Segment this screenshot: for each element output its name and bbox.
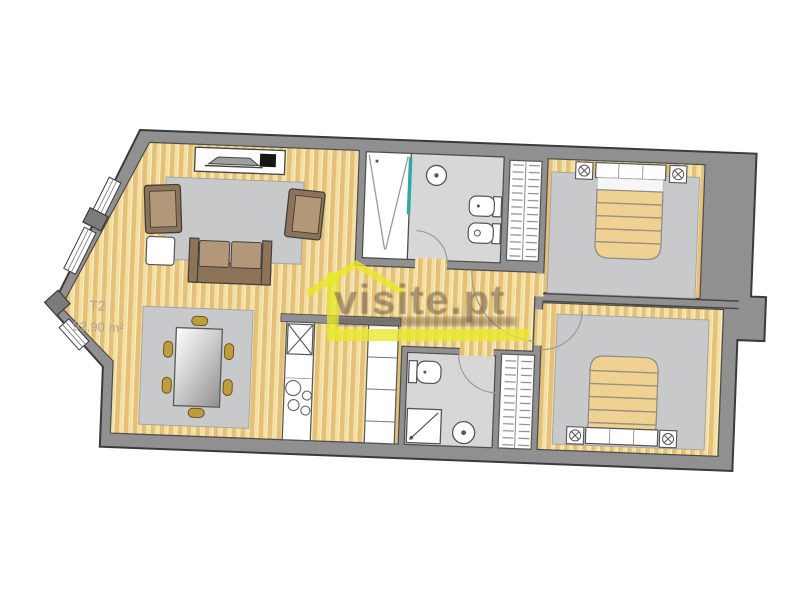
nightstand-lamp-icon (566, 427, 584, 445)
washbasin-icon (426, 165, 447, 186)
double-bed-top (592, 163, 666, 261)
dining-table (173, 328, 222, 408)
watermark: visite.pt (310, 264, 529, 341)
nightstand-lamp-icon (659, 430, 677, 448)
wardrobe-bottom (498, 354, 535, 449)
toilet-icon (409, 361, 442, 384)
watermark-underline-bar (327, 329, 529, 341)
toilet-icon (469, 196, 502, 217)
wardrobe-top (506, 160, 542, 261)
kitchen-cabinets (364, 325, 399, 444)
double-bed-bottom (585, 355, 660, 446)
watermark-site-text: visite.pt (334, 276, 506, 323)
armchair (144, 184, 181, 233)
nightstand-lamp-icon (575, 162, 593, 180)
bedroom-bottom-right (530, 309, 709, 450)
chair (188, 408, 204, 418)
bedroom2-door-opening (534, 309, 543, 345)
chair (163, 341, 173, 357)
sink-icon (287, 324, 313, 355)
chair (192, 316, 208, 326)
shower-icon (406, 408, 441, 443)
area-label: 92.90 m² (72, 319, 125, 336)
side-table (146, 236, 175, 265)
unit-label: T2 (89, 297, 106, 314)
media-box-icon (260, 154, 276, 168)
bathroom-bottom (404, 345, 497, 447)
bathroom-top-door-opening (415, 258, 447, 270)
bathroom-top (362, 152, 504, 272)
dining-area (139, 306, 253, 428)
footboard (585, 427, 658, 446)
washbasin-icon (452, 421, 475, 444)
chair (162, 377, 172, 393)
chair (224, 343, 234, 359)
chair (223, 379, 233, 395)
nightstand-lamp-icon (669, 165, 687, 183)
blanket (594, 190, 663, 260)
tv-console (194, 147, 285, 174)
shower-glass-panel (408, 157, 410, 214)
bathroom-bottom-door-opening (460, 347, 494, 356)
armchair (284, 189, 325, 241)
floorplan-image: T2 92.90 m² visite.pt (0, 0, 800, 600)
blanket (588, 355, 659, 430)
bidet-icon (468, 223, 501, 244)
floor-plan-canvas: T2 92.90 m² visite.pt (0, 0, 800, 600)
